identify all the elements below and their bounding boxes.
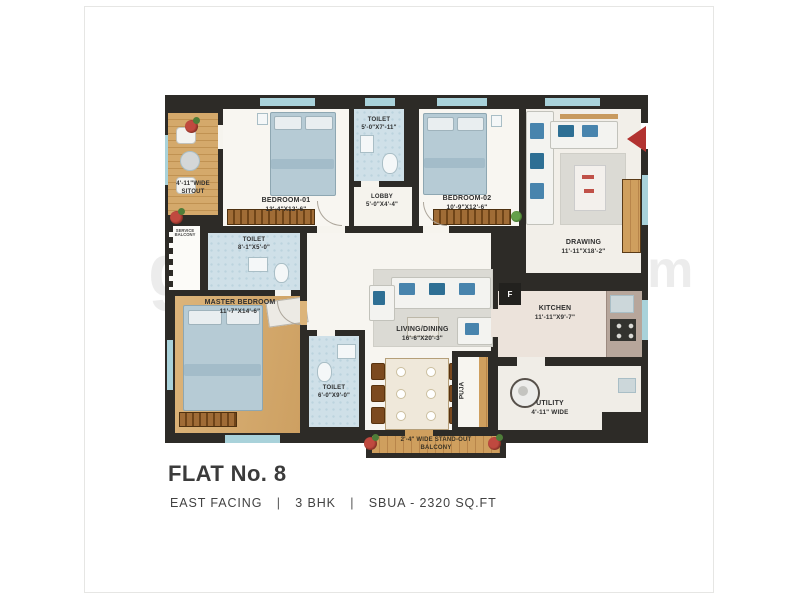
- east-entry-arrow-icon: [627, 126, 646, 152]
- area-text: SBUA - 2320 SQ.FT: [369, 496, 497, 510]
- door-gap: [275, 290, 291, 296]
- wall: [602, 412, 641, 430]
- plate: [396, 389, 406, 399]
- window-drawing-top: [545, 98, 600, 106]
- window-toilet-top: [365, 98, 395, 106]
- bhk-text: 3 BHK: [295, 496, 336, 510]
- cushion: [530, 153, 544, 169]
- room-kitchen: F: [498, 291, 641, 357]
- sink: [610, 295, 634, 313]
- stove: [610, 319, 636, 341]
- facing-text: EAST FACING: [170, 496, 262, 510]
- bed-fold: [184, 364, 261, 376]
- cushion: [530, 123, 544, 139]
- room-toilet-bottom: [303, 330, 365, 433]
- label-sitout: 4'-11"WIDE SITOUT: [165, 181, 221, 196]
- door-gap: [517, 357, 545, 366]
- door-gap: [491, 309, 498, 337]
- balcony-door-gap: [405, 430, 433, 437]
- door-gap: [361, 181, 379, 187]
- cushion: [459, 283, 475, 295]
- chair: [371, 363, 385, 380]
- label-lobby: LOBBY 5'-0"X4'-4": [351, 194, 413, 209]
- cushion: [429, 283, 445, 295]
- label-toilet-top: TOILET 5'-0"X7'-11": [351, 117, 407, 132]
- label-bedroom02: BEDROOM-02 10'-9"X12'-6": [417, 195, 517, 212]
- label-drawing: DRAWING 11'-11"X18'-2": [526, 239, 641, 256]
- chair: [371, 385, 385, 402]
- plant-pot: [511, 211, 522, 222]
- floor-plan: F 4'-11"WIDE SITOUT SERVICE BALCONY BEDR…: [165, 95, 648, 443]
- side-table: [491, 115, 502, 127]
- cushion: [399, 283, 415, 295]
- bed-fold: [271, 159, 334, 169]
- master-door-gap: [300, 301, 307, 325]
- label-master-bedroom: MASTER BEDROOM 11'-7"X14'-6": [180, 299, 300, 316]
- mat-pattern: [584, 189, 594, 193]
- window-bedroom02: [437, 98, 487, 106]
- window-kitchen: [642, 300, 648, 340]
- mat-pattern: [582, 175, 594, 179]
- entrance-door: [560, 114, 618, 119]
- label-living-dining: LIVING/DINING 16'-6"X20'-3": [365, 326, 480, 343]
- bed: [423, 113, 487, 195]
- plate: [426, 389, 436, 399]
- pillow: [305, 116, 333, 130]
- bed: [183, 305, 263, 411]
- window-bedroom01: [260, 98, 315, 106]
- washbasin: [360, 135, 374, 153]
- plant-pot: [185, 120, 198, 133]
- window-master-bottom: [225, 435, 280, 443]
- cushion: [530, 183, 544, 199]
- door-gap: [423, 226, 449, 233]
- wc: [382, 153, 398, 174]
- chair: [371, 407, 385, 424]
- door-gap: [218, 125, 223, 149]
- pillow: [274, 116, 302, 130]
- bed-fold: [424, 158, 485, 168]
- room-utility: [498, 366, 641, 430]
- side-table: [257, 113, 268, 125]
- washbasin: [337, 344, 356, 359]
- pillow: [457, 117, 484, 131]
- floor-mat: [574, 165, 606, 211]
- puja-door: [479, 357, 488, 427]
- pillow: [427, 117, 454, 131]
- label-toilet-bottom: TOILET 6'-0"X9'-0": [303, 385, 365, 400]
- separator: |: [277, 496, 281, 510]
- label-balcony: 2'-4" WIDE STAND-OUT BALCONY: [372, 437, 500, 452]
- fridge-label: F: [508, 290, 513, 299]
- flat-specs: EAST FACING | 3 BHK | SBUA - 2320 SQ.FT: [170, 496, 497, 510]
- label-puja: PUJA: [459, 376, 466, 406]
- plate: [426, 367, 436, 377]
- plate: [426, 411, 436, 421]
- room-master-bedroom: [175, 296, 300, 433]
- label-utility: UTILITY 4'-11" WIDE: [505, 400, 595, 417]
- cushion: [558, 125, 574, 137]
- label-toilet-mid: TOILET 8'-1"X5'-0": [208, 237, 300, 252]
- plant-pot: [170, 211, 183, 224]
- separator: |: [350, 496, 354, 510]
- wc: [274, 263, 289, 283]
- door-gap: [317, 226, 345, 233]
- plate: [396, 411, 406, 421]
- toilet-door-gap: [317, 330, 335, 336]
- wc: [317, 362, 332, 382]
- plate: [396, 367, 406, 377]
- label-bedroom01: BEDROOM-01 13'-4"X12'-6": [231, 197, 341, 214]
- window-drawing-right: [642, 175, 648, 225]
- window-master-left: [167, 340, 173, 390]
- page: { "footer": { "flat": "FLAT No. 8", "fac…: [0, 0, 800, 600]
- label-kitchen: KITCHEN 11'-11"X9'-7": [510, 305, 600, 322]
- cushion: [373, 291, 385, 305]
- sitout-table: [180, 151, 200, 171]
- utility-sink: [618, 378, 636, 393]
- wardrobe: [179, 412, 237, 427]
- washbasin: [248, 257, 268, 272]
- cushion: [582, 125, 598, 137]
- dining-table: [385, 358, 449, 430]
- label-service-balcony: SERVICE BALCONY: [172, 229, 197, 238]
- bed: [270, 112, 336, 196]
- fridge: F: [499, 283, 521, 305]
- flat-title: FLAT No. 8: [168, 461, 286, 487]
